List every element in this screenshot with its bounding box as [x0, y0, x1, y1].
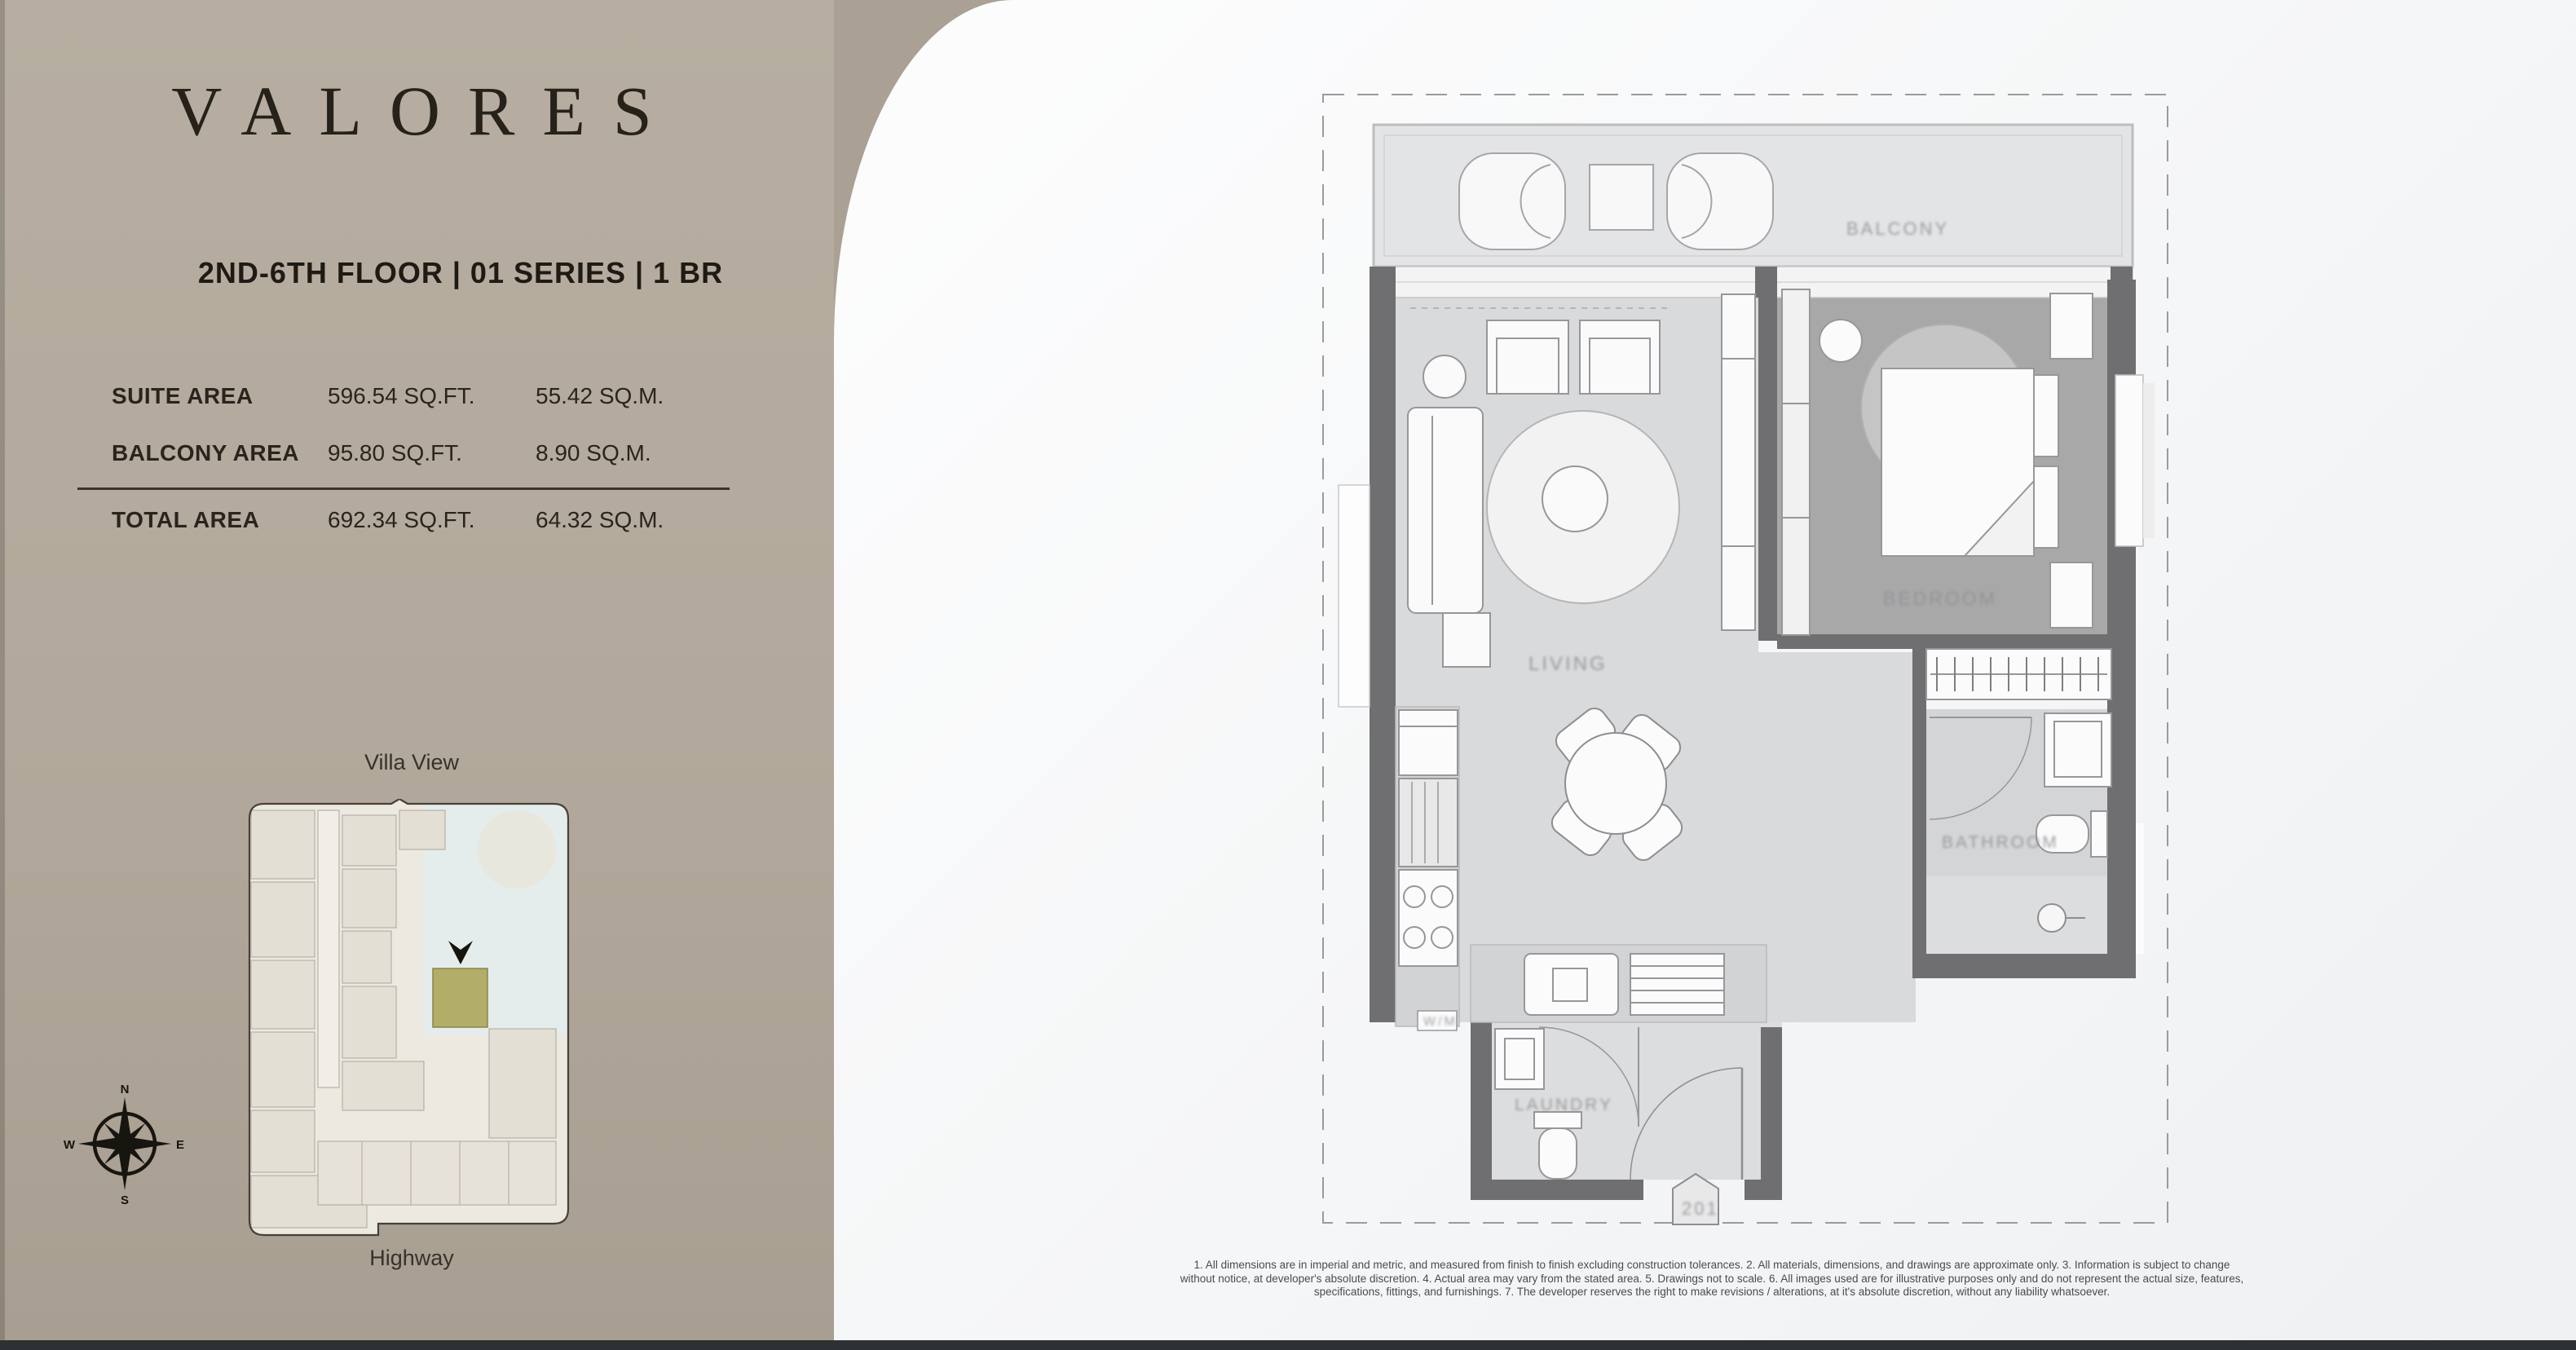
brand-logo: VALORES [0, 70, 823, 152]
balcony-label: BALCONY [1846, 218, 1949, 239]
disclaimer-line: 1. All dimensions are in imperial and me… [1076, 1259, 2348, 1273]
wardrobe-symbol [1782, 289, 1810, 635]
ac-ledge [1339, 485, 1370, 707]
pillow-symbol [2034, 466, 2058, 548]
disclaimer-text: 1. All dimensions are in imperial and me… [1076, 1259, 2348, 1299]
keyplan-road-label: Highway [0, 1246, 823, 1271]
foyer-floor [1926, 876, 2114, 954]
living-label: LIVING [1528, 653, 1608, 675]
brochure-page: VALORES 2ND-6TH FLOOR | 01 SERIES | 1 BR… [0, 0, 2576, 1350]
bathroom-label: BATHROOM [1942, 833, 2059, 852]
wc-tank-symbol [2091, 811, 2107, 857]
entry-tag-label: 201 [1682, 1198, 1719, 1219]
bedroom-label: BEDROOM [1883, 588, 1997, 609]
balcony-table-symbol [1590, 165, 1653, 230]
compass-s: S [121, 1193, 129, 1207]
area-imperial: 596.54 SQ.FT. [328, 383, 536, 409]
service-slot [2136, 823, 2144, 954]
nightstand-symbol [2050, 562, 2093, 628]
hall-floor [1758, 652, 1916, 1022]
table-row: TOTAL AREA 692.34 SQ.FT. 64.32 SQ.M. [112, 507, 715, 533]
highlighted-unit [433, 968, 487, 1027]
keyplan-view-label: Villa View [0, 750, 823, 775]
area-imperial: 95.80 SQ.FT. [328, 440, 536, 466]
window-ledge [2143, 383, 2155, 538]
wc-tank-symbol [1534, 1112, 1581, 1128]
compass-w: W [64, 1138, 76, 1152]
page-bottom-bar [0, 1340, 2576, 1350]
table-row: SUITE AREA 596.54 SQ.FT. 55.42 SQ.M. [112, 383, 715, 409]
laundry-label: LAUNDRY [1515, 1096, 1613, 1114]
unit-title: 2ND-6TH FLOOR | 01 SERIES | 1 BR [98, 256, 823, 290]
wc-symbol [1539, 1128, 1577, 1179]
page-left-edge [0, 0, 5, 1340]
bedroom-window [2115, 375, 2143, 546]
utility-tag-label: W/M [1423, 1015, 1458, 1029]
area-label: TOTAL AREA [112, 507, 328, 533]
table-row: BALCONY AREA 95.80 SQ.FT. 8.90 SQ.M. [112, 440, 715, 466]
kitchen-sink-counter [1399, 779, 1458, 867]
coffee-table-symbol [1542, 466, 1608, 532]
stove-symbol [1399, 870, 1458, 966]
lounge-chair-symbol [1667, 153, 1773, 249]
bedside-table-symbol [1820, 320, 1862, 362]
area-metric: 64.32 SQ.M. [536, 507, 715, 533]
key-plan-map [240, 799, 575, 1243]
disclaimer-line: without notice, at developer's absolute … [1076, 1273, 2348, 1286]
area-metric: 8.90 SQ.M. [536, 440, 715, 466]
disclaimer-line: specifications, fittings, and furnishing… [1076, 1286, 2348, 1299]
sofa-ottoman-symbol [1443, 613, 1490, 667]
keyplan-sand-patch [478, 810, 556, 889]
drawer-stack-symbol [1630, 954, 1724, 1015]
foyer-fixture-symbol [2038, 904, 2066, 932]
compass-n: N [121, 1083, 130, 1096]
compass-e: E [176, 1138, 184, 1152]
area-imperial: 692.34 SQ.FT. [328, 507, 536, 533]
pillow-symbol [2034, 375, 2058, 457]
floor-plan: BALCONY [1321, 90, 2172, 1227]
table-divider [77, 487, 730, 490]
area-label: BALCONY AREA [112, 440, 328, 466]
counter-sink-symbol [1524, 954, 1618, 1015]
nightstand-symbol [2050, 293, 2093, 359]
sofa-symbol [1408, 408, 1483, 613]
tv-unit-symbol [1722, 294, 1755, 630]
armchair-symbol [1580, 320, 1660, 394]
lounge-chair-symbol [1459, 153, 1565, 249]
side-table-symbol [1423, 355, 1466, 398]
dining-table-symbol [1565, 733, 1666, 834]
fridge-symbol [1399, 710, 1458, 775]
compass-icon: N E S W [60, 1079, 190, 1209]
armchair-symbol [1487, 320, 1568, 394]
area-label: SUITE AREA [112, 383, 328, 409]
area-metric: 55.42 SQ.M. [536, 383, 715, 409]
